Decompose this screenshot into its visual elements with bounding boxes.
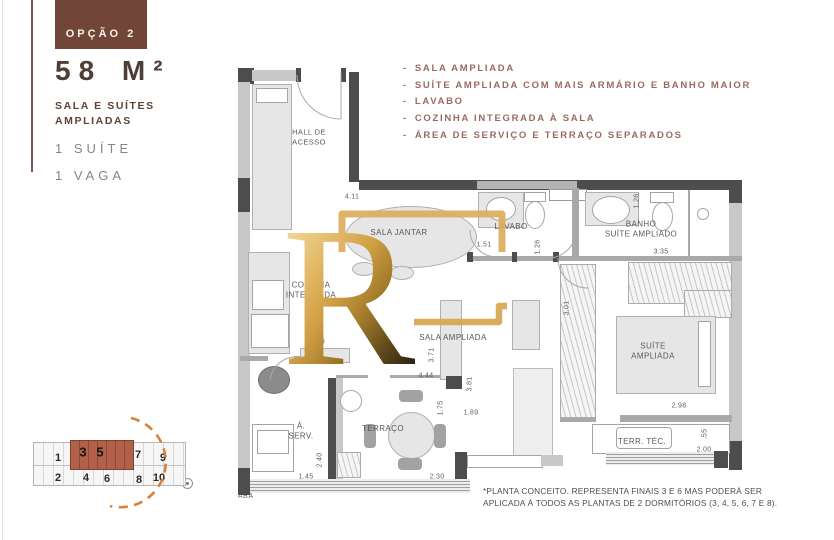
terrace-table (388, 412, 435, 459)
floor-plan-page: OPÇÃO 2 58 M² SALA E SUÍTES AMPLIADAS 1 … (0, 0, 834, 540)
plan-subtitle: SALA E SUÍTES AMPLIADAS (55, 99, 155, 129)
keyplan-unit-number: 4 (83, 472, 89, 484)
keyplan-unit-number: 10 (153, 472, 165, 484)
room-label-sala: SALA AMPLIADA (419, 333, 486, 343)
highlights-list: -SALA AMPLIADA -SUÍTE AMPLIADA COM MAIS … (403, 60, 751, 144)
terrace-chair (398, 458, 422, 470)
keyplan-unit-number: 9 (160, 452, 166, 464)
bullet-dash: - (403, 63, 408, 74)
dimension-aserv_w: 1.45 (299, 474, 314, 481)
footnote: *PLANTA CONCEITO. REPRESENTA FINAIS 3 E … (483, 486, 777, 509)
feature-vaga: 1 VAGA (55, 168, 125, 183)
dimension-wardrobe_h: 3.01 (564, 301, 571, 316)
window (549, 189, 587, 201)
wall (446, 376, 462, 389)
oven (252, 280, 284, 310)
wall (477, 181, 577, 189)
dimension-corridor_h: 3.81 (467, 377, 474, 392)
keyplan-unit-number: 2 (55, 472, 61, 484)
highlight-item: -LAVABO (403, 94, 751, 111)
wall (238, 178, 250, 212)
dimension-banho_w: 3.35 (654, 249, 669, 256)
footnote-line1: *PLANTA CONCEITO. REPRESENTA FINAIS 3 E … (483, 486, 777, 498)
keyplan-unit-number: 3 (79, 445, 86, 460)
wall (572, 188, 579, 258)
wall (238, 477, 250, 495)
dimension-terraco_w: 2.30 (430, 474, 445, 481)
page-edge-line (2, 0, 3, 540)
plan-subtitle-line2: AMPLIADAS (55, 114, 155, 129)
room-label-lavabo: LAVABO (494, 222, 527, 232)
feature-suite: 1 SUÍTE (55, 141, 132, 156)
dimension-door_h: 1.89 (464, 410, 479, 417)
wall (467, 256, 742, 261)
wall (455, 452, 467, 480)
washer-door (257, 430, 289, 454)
door-post (553, 252, 559, 262)
keyplan-unit-number: 6 (104, 473, 110, 485)
bullet-dash: - (403, 96, 408, 107)
keyplan-unit-number: 8 (136, 474, 142, 486)
plan-subtitle-line1: SALA E SUÍTES (55, 99, 155, 114)
room-label-terraco: TERRAÇO (362, 424, 404, 434)
dimension-terraco_h: 1.75 (438, 401, 445, 416)
dimension-terrtec_h: .55 (702, 429, 709, 440)
room-label-banho: BANHOSUÍTE AMPLIADO (605, 220, 677, 241)
dimension-terrtec_w: 2.00 (697, 447, 712, 454)
keyplan-unit-number: 7 (135, 449, 141, 461)
wall (238, 82, 250, 180)
wall (467, 455, 543, 468)
area-title: 58 M² (55, 55, 171, 87)
highlight-item: -SUÍTE AMPLIADA COM MAIS ARMÁRIO E BANHO… (403, 77, 751, 94)
suite-wardrobe (560, 264, 596, 418)
dimension-aserv_h: 2.40 (317, 453, 324, 468)
terrace-chair (434, 424, 446, 448)
dimension-banho_d: 1.26 (634, 194, 641, 209)
planter (337, 452, 361, 478)
dimension-suite_w: 2.98 (672, 403, 687, 410)
room-label-aserv: Á.SERV. (288, 422, 313, 443)
dimension-sala_h: 3.71 (429, 348, 436, 363)
dimension-sala_w: 4.44 (419, 373, 434, 380)
wall-panel (513, 368, 553, 456)
option-badge: OPÇÃO 2 (55, 0, 147, 49)
wall (729, 188, 742, 203)
door-gap (596, 415, 620, 422)
bullet-dash: - (403, 130, 408, 141)
highlight-item: -ÁREA DE SERVIÇO E TERRAÇO SEPARADOS (403, 127, 751, 144)
wall (729, 441, 742, 470)
highlight-item: -COZINHA INTEGRADA À SALA (403, 110, 751, 127)
shower-screen (688, 190, 690, 256)
terrace-railing (240, 479, 470, 493)
keyplan-unit-number: 1 (55, 452, 61, 464)
door-post (512, 252, 517, 262)
sliding-door (512, 300, 540, 350)
room-label-hall: HALL DEACESSO (292, 127, 326, 147)
dimension-lavabo_w: 1.51 (477, 242, 492, 249)
dimension-lavabo_d: 1.26 (535, 240, 542, 255)
shelf (256, 88, 288, 103)
footnote-line2: APLICADA À TODOS AS PLANTAS DE 2 DORMITÓ… (483, 498, 777, 510)
keyplan: 13579246810 (33, 437, 186, 487)
room-label-terrtec: TERR. TÉC. (618, 437, 666, 447)
wall (252, 70, 298, 81)
pillow (698, 321, 711, 387)
sidebar-rule (31, 0, 33, 172)
highlight-item: -SALA AMPLIADA (403, 60, 751, 77)
wall (541, 455, 563, 466)
bullet-dash: - (403, 113, 408, 124)
bullet-dash: - (403, 80, 408, 91)
watermark-letter: R (282, 198, 415, 398)
option-badge-label: OPÇÃO 2 (66, 28, 137, 40)
wall (714, 451, 728, 468)
louver-wall (606, 452, 718, 465)
toilet-bowl (525, 201, 545, 229)
door-post (467, 252, 473, 262)
keyplan-unit-number: 5 (96, 445, 103, 460)
suite-closet (684, 290, 732, 318)
wall (349, 72, 359, 182)
door-post (296, 68, 301, 82)
lavabo-sink (486, 197, 516, 221)
wall (729, 188, 742, 470)
room-label-suite: SUÍTEAMPLIADA (631, 342, 675, 363)
shower-head (697, 208, 709, 220)
door-post (341, 68, 346, 82)
